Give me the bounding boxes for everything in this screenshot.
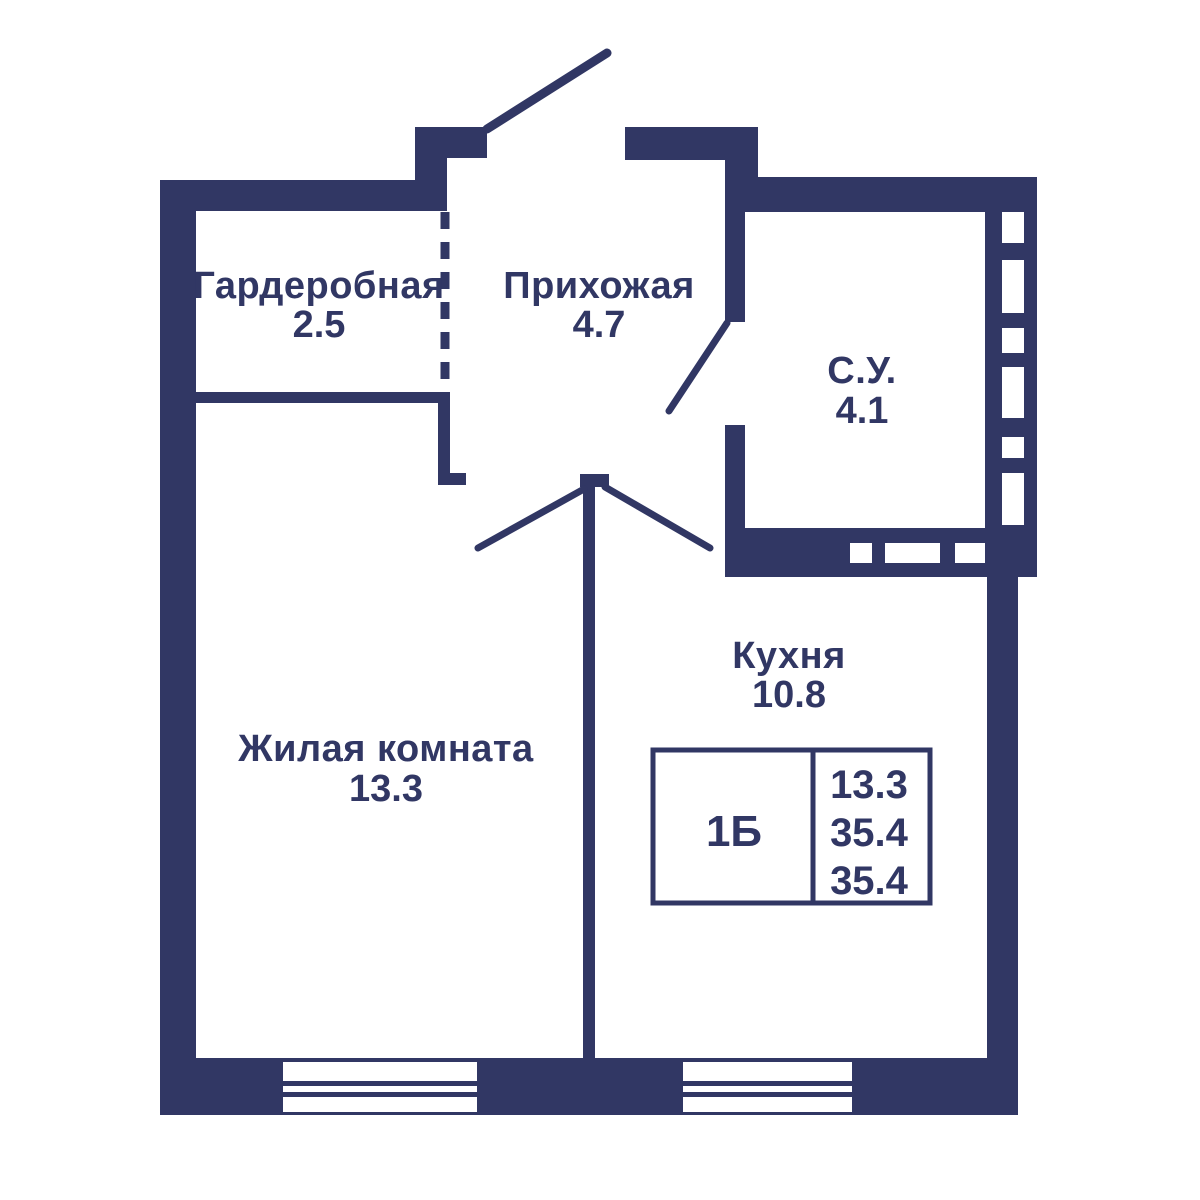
outer-wall-left — [160, 180, 196, 1115]
living-room-door-swing — [478, 489, 584, 548]
bathroom-wall-left-upper — [725, 212, 745, 322]
living-room-corner-wall — [438, 392, 466, 485]
entry-jamb-left-top — [415, 127, 487, 158]
room-area-bathroom: 4.1 — [836, 390, 889, 432]
outer-wall-top-left — [160, 180, 447, 211]
room-area-living: 13.3 — [349, 768, 423, 810]
legend-unit-label: 1Б — [706, 807, 762, 856]
living-room-window — [283, 1062, 477, 1112]
shaft-cell — [1002, 367, 1024, 418]
shaft-cell — [850, 543, 872, 563]
room-area-wardrobe: 2.5 — [293, 304, 346, 346]
shaft-cell — [885, 543, 940, 563]
entrance-door-swing — [487, 53, 607, 129]
wardrobe-wall-bottom — [196, 392, 450, 403]
living-room-window-glazing — [283, 1081, 477, 1086]
entry-jamb-right-step — [725, 160, 758, 178]
entry-jamb-left-leg — [415, 158, 447, 211]
legend-value-living: 35.4 — [830, 811, 909, 855]
kitchen-window-glazing — [683, 1081, 852, 1086]
room-area-kitchen: 10.8 — [752, 674, 826, 716]
bathroom-door-swing — [669, 323, 727, 411]
shaft-cell — [1002, 212, 1024, 243]
bathroom-wall-bottom-shaft — [725, 528, 1037, 577]
shaft-cell — [1002, 260, 1024, 313]
room-name-living: Жилая комната — [237, 728, 534, 770]
bathroom-wall-left-lower — [725, 425, 745, 528]
entry-jamb-right — [625, 127, 758, 160]
floor-plan: Гардеробная 2.5 Прихожая 4.7 С.У. 4.1 Ку… — [0, 0, 1200, 1200]
floor-plan-svg: Гардеробная 2.5 Прихожая 4.7 С.У. 4.1 Ку… — [0, 0, 1200, 1200]
room-name-hallway: Прихожая — [503, 265, 695, 307]
shaft-cell — [1002, 437, 1024, 458]
legend: 1Б 13.3 35.4 35.4 — [653, 750, 930, 903]
room-name-bathroom: С.У. — [827, 350, 896, 392]
shaft-cell — [1002, 473, 1024, 525]
room-area-hallway: 4.7 — [573, 304, 626, 346]
shaft-cell — [1002, 328, 1024, 353]
legend-value-room: 13.3 — [830, 763, 908, 807]
kitchen-door-swing — [605, 487, 710, 548]
outer-wall-right — [987, 577, 1018, 1115]
legend-value-total: 35.4 — [830, 859, 909, 903]
shaft-cell — [955, 543, 985, 563]
partition-living-kitchen — [583, 487, 595, 1060]
room-name-wardrobe: Гардеробная — [193, 265, 444, 307]
kitchen-window-glazing — [683, 1092, 852, 1097]
bathroom-wall-top — [725, 177, 1037, 212]
room-name-kitchen: Кухня — [732, 635, 846, 677]
kitchen-window — [683, 1062, 852, 1112]
living-room-window-glazing — [283, 1092, 477, 1097]
